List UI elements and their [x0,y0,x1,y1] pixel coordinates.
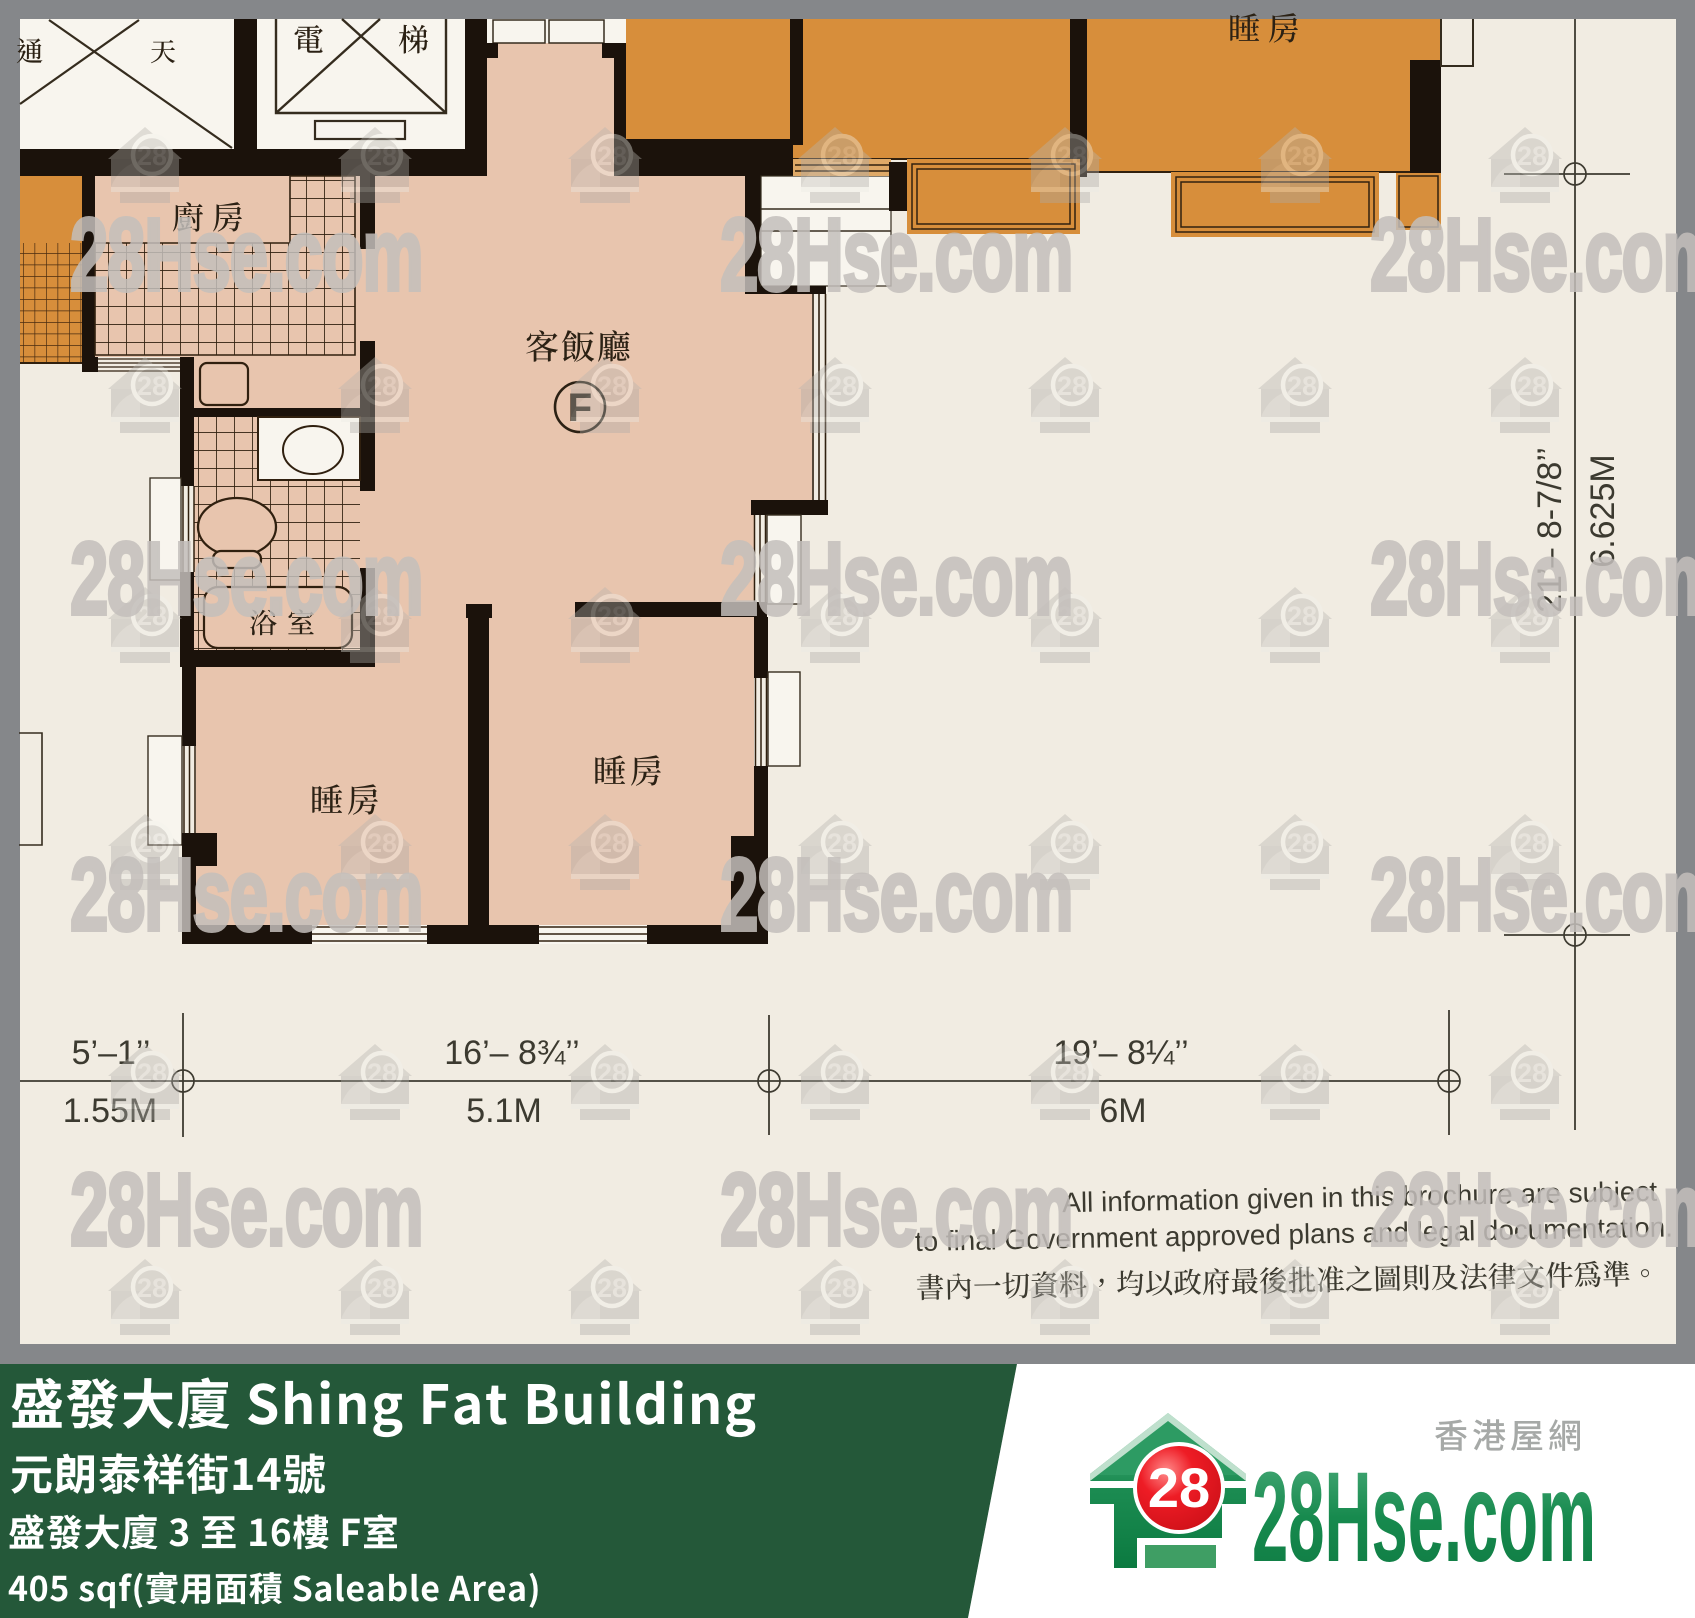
svg-text:5.1M: 5.1M [466,1092,542,1130]
svg-text:28Hse.com: 28Hse.com [1252,1446,1596,1589]
svg-text:28Hse.com: 28Hse.com [70,837,422,952]
svg-text:28Hse.com: 28Hse.com [720,1152,1072,1267]
svg-text:28Hse.com: 28Hse.com [1370,521,1695,636]
svg-text:16’– 8¾’’: 16’– 8¾’’ [444,1034,580,1072]
svg-text:28Hse.com: 28Hse.com [70,197,422,312]
svg-text:28Hse.com: 28Hse.com [1370,1152,1695,1267]
svg-text:28Hse.com: 28Hse.com [70,521,422,636]
svg-text:28Hse.com: 28Hse.com [720,197,1072,312]
svg-text:6M: 6M [1099,1092,1146,1130]
svg-text:28Hse.com: 28Hse.com [720,521,1072,636]
svg-text:28Hse.com: 28Hse.com [1370,197,1695,312]
svg-text:28Hse.com: 28Hse.com [1370,837,1695,952]
svg-text:28: 28 [1148,1456,1210,1519]
svg-text:28Hse.com: 28Hse.com [70,1152,422,1267]
svg-text:28Hse.com: 28Hse.com [720,837,1072,952]
